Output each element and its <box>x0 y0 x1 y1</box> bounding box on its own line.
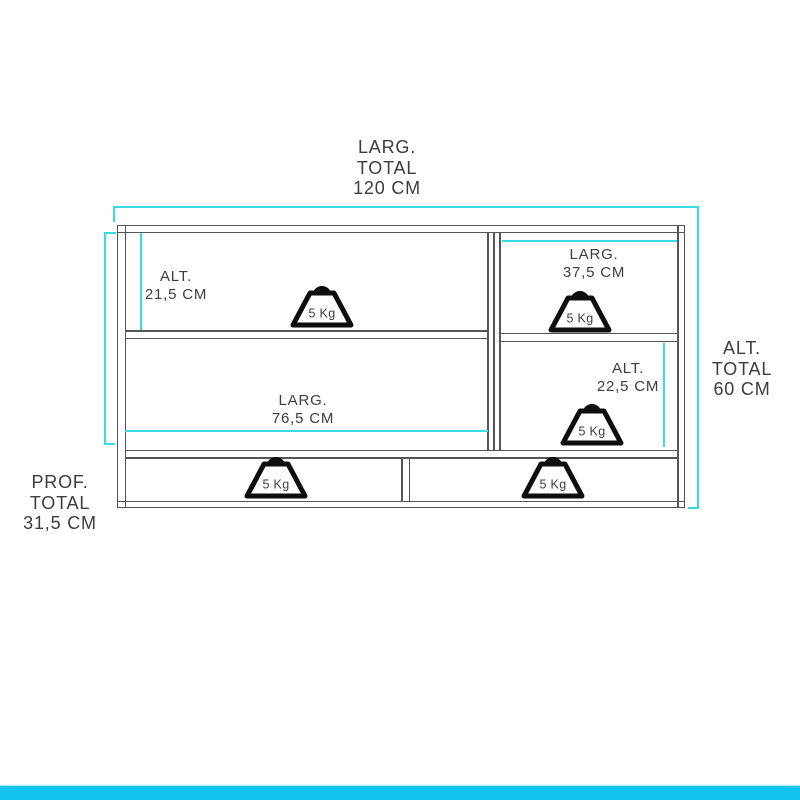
drawer-top-shelf-line-top <box>126 450 677 452</box>
dim-label-line: ALT. <box>712 338 772 359</box>
left-bracket-line <box>104 232 106 445</box>
center-divider-line-2 <box>493 232 495 451</box>
dim-label-line: 60 CM <box>712 379 772 400</box>
dim-label-line: 76,5 CM <box>272 410 334 428</box>
dim-label-line: LARG. <box>272 392 334 410</box>
dim-upper-left-height-line <box>140 233 142 330</box>
weight-label: 5 Kg <box>309 307 336 321</box>
weight-capacity-icon: 5 Kg <box>243 455 309 501</box>
dim-label-line: TOTAL <box>23 493 97 514</box>
dim-label-upper-left-height: ALT. 21,5 CM <box>145 268 207 304</box>
dim-label-lower-right-height: ALT. 22,5 CM <box>597 360 659 396</box>
dim-lower-left-width-line <box>125 430 488 432</box>
left-bracket-bottom-tick <box>104 443 115 445</box>
dim-label-upper-right-width: LARG. 37,5 CM <box>563 246 625 282</box>
weight-capacity-icon: 5 Kg <box>289 284 355 330</box>
dim-label-line: ALT. <box>145 268 207 286</box>
weight-label: 5 Kg <box>263 478 290 492</box>
drawer-divider-line-1 <box>401 458 403 501</box>
dim-label-line: ALT. <box>597 360 659 378</box>
dim-label-line: TOTAL <box>353 158 421 179</box>
left-shelf-line-top <box>126 330 488 332</box>
weight-label: 5 Kg <box>579 425 606 439</box>
dim-label-line: TOTAL <box>712 359 772 380</box>
dim-total-width-left-tick <box>113 206 115 222</box>
cabinet-left-side-line <box>125 225 127 508</box>
dim-label-total-height: ALT. TOTAL 60 CM <box>712 338 772 400</box>
dim-lower-right-height-line <box>663 343 665 447</box>
dim-label-line: LARG. <box>353 137 421 158</box>
weight-label: 5 Kg <box>540 478 567 492</box>
weight-label: 5 Kg <box>567 312 594 326</box>
dim-label-line: 31,5 CM <box>23 513 97 534</box>
dim-label-total-depth: PROF. TOTAL 31,5 CM <box>23 472 97 534</box>
dim-label-line: 21,5 CM <box>145 286 207 304</box>
drawer-divider-line-2 <box>409 458 411 501</box>
dim-label-total-width: LARG. TOTAL 120 CM <box>353 137 421 199</box>
dim-total-height-line <box>697 206 699 509</box>
dim-label-line: 120 CM <box>353 178 421 199</box>
cabinet-top-rail-line <box>117 232 685 234</box>
dim-label-line: 37,5 CM <box>563 264 625 282</box>
weight-capacity-icon: 5 Kg <box>520 455 586 501</box>
weight-capacity-icon: 5 Kg <box>547 289 613 335</box>
weight-capacity-icon: 5 Kg <box>559 402 625 448</box>
furniture-dimension-diagram: LARG. TOTAL 120 CM ALT. TOTAL 60 CM PROF… <box>0 0 800 800</box>
dim-label-line: 22,5 CM <box>597 378 659 396</box>
center-divider-line-1 <box>487 232 489 451</box>
left-shelf-line-bottom <box>126 338 488 340</box>
dim-label-lower-left-width: LARG. 76,5 CM <box>272 392 334 428</box>
dim-label-line: LARG. <box>563 246 625 264</box>
left-bracket-top-tick <box>104 232 116 234</box>
dim-upper-right-width-line <box>502 240 677 242</box>
bottom-accent-bar <box>0 786 800 800</box>
dim-total-width-line <box>113 206 699 208</box>
cabinet-right-side-line <box>677 225 679 508</box>
dim-label-line: PROF. <box>23 472 97 493</box>
right-shelf-line-bottom <box>500 341 677 343</box>
dim-total-height-end-tick <box>688 507 699 509</box>
